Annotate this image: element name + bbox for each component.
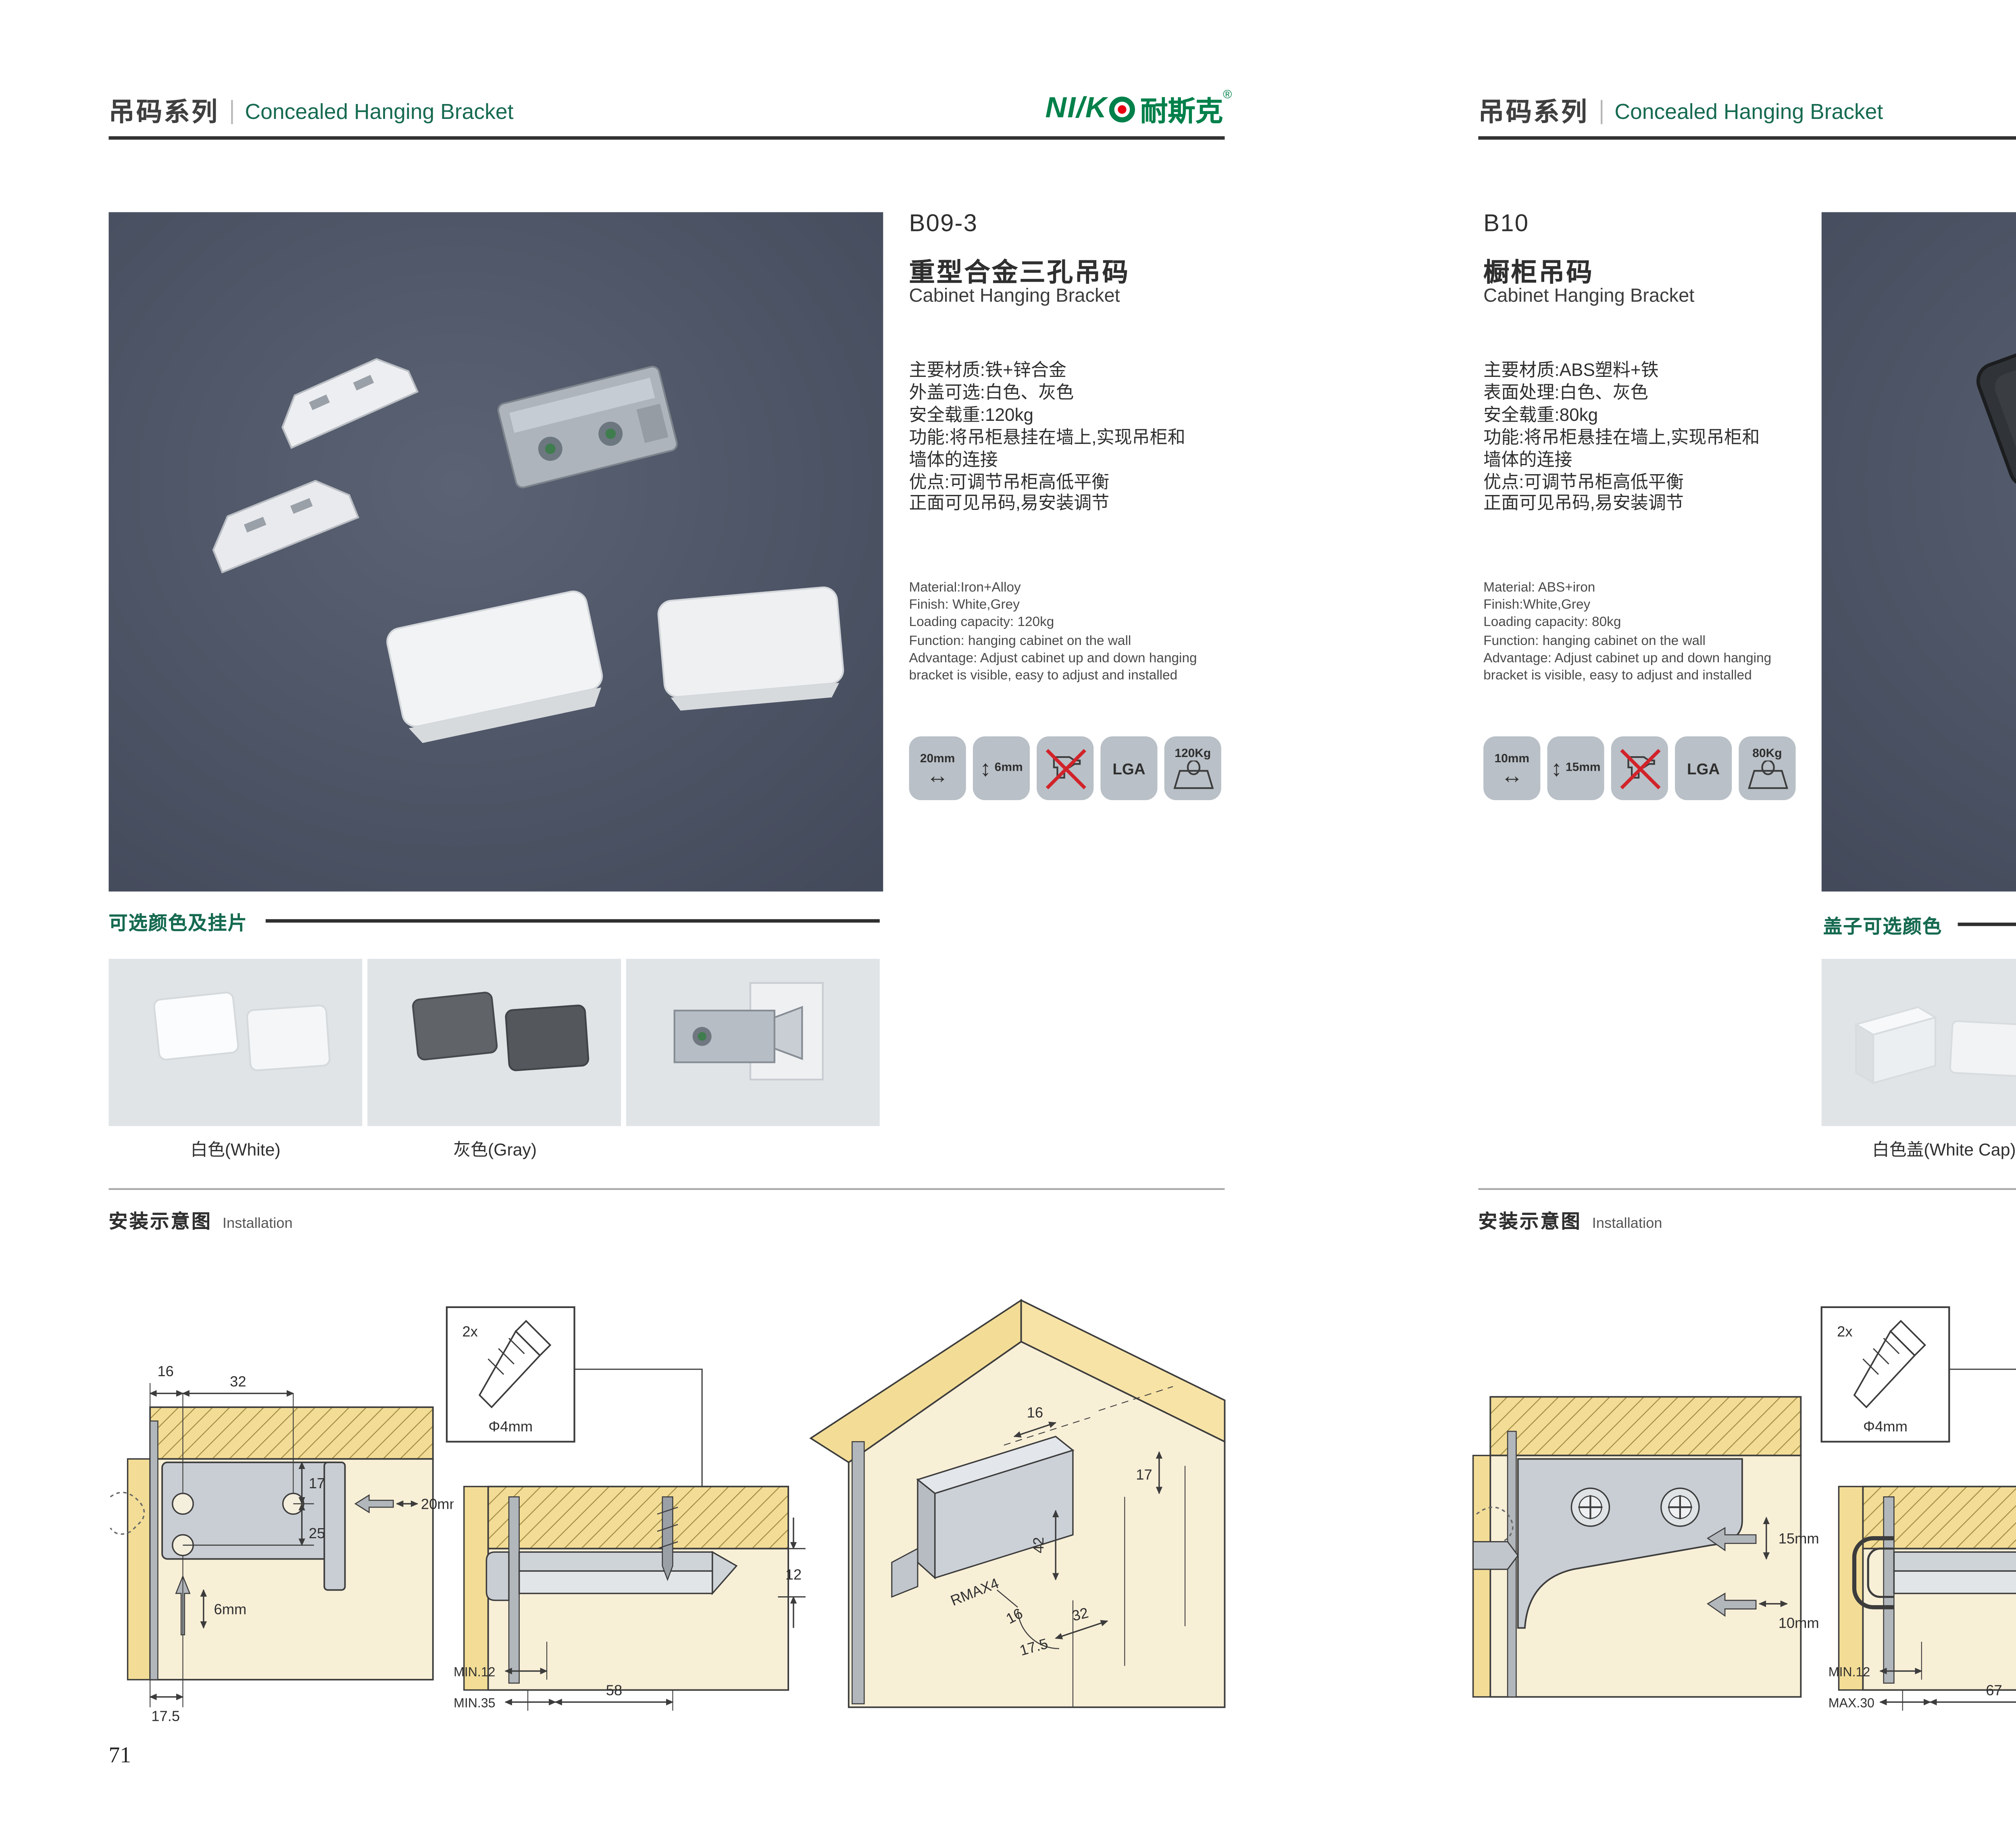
white-caps-image	[109, 959, 362, 1126]
svg-text:17: 17	[309, 1475, 325, 1491]
product-name-en: Cabinet Hanging Bracket	[909, 286, 1120, 307]
specs-cjk: 主要材质:ABS塑料+铁 表面处理:白色、灰色 安全载重:80kg 功能:将吊柜…	[1483, 362, 1760, 518]
badge-vertical-range: ↕ 6mm	[973, 736, 1030, 800]
install-section-title: 安装示意图 Installation	[1478, 1207, 1662, 1235]
series-title-en: Concealed Hanging Bracket	[245, 99, 514, 123]
svg-text:Φ4mm: Φ4mm	[488, 1418, 533, 1435]
badge-no-drill	[1037, 736, 1093, 800]
swatch-caption: 白色(White)	[109, 1135, 362, 1161]
product-name-cjk: 重型合金三孔吊码	[909, 254, 1130, 290]
no-drill-icon	[1043, 746, 1087, 790]
spec-line: Advantage: Adjust cabinet up and down ha…	[1483, 650, 1771, 668]
spec-line: 外盖可选:白色、灰色	[909, 385, 1185, 407]
svg-text:67: 67	[1986, 1682, 2002, 1698]
svg-text:MAX.30: MAX.30	[1829, 1695, 1874, 1710]
header-rule	[109, 136, 1225, 140]
series-title-en: Concealed Hanging Bracket	[1614, 99, 1883, 123]
badge-lga: LGA	[1675, 736, 1732, 800]
svg-text:58: 58	[606, 1682, 622, 1698]
horizontal-arrow-icon: ↔	[926, 765, 949, 784]
svg-text:MIN.12: MIN.12	[1829, 1664, 1870, 1679]
spec-line: Material:Iron+Alloy	[909, 579, 1197, 597]
logo-cjk: 耐斯克	[1140, 88, 1223, 129]
spec-line: 墙体的连接	[909, 451, 1185, 473]
spec-line: Finish:White,Grey	[1483, 597, 1771, 615]
swatch-hanging-plate	[626, 959, 880, 1126]
series-title-cjk: 吊码系列	[109, 93, 219, 129]
logo-text: NI/K	[1045, 92, 1108, 126]
install-diagram-side-section: 2x Φ4mm 18	[1815, 1279, 2016, 1719]
header-rule	[1478, 136, 2016, 140]
svg-text:MIN.12: MIN.12	[454, 1664, 495, 1679]
badge-lga: LGA	[1100, 736, 1157, 800]
install-section-title: 安装示意图 Installation	[109, 1207, 293, 1235]
spec-line: 安全载重:120kg	[909, 407, 1185, 429]
no-drill-icon	[1617, 746, 1662, 790]
gray-caps-image	[367, 959, 621, 1126]
svg-text:16: 16	[1027, 1404, 1043, 1421]
specs-en: Material: ABS+iron Finish:White,Grey Loa…	[1483, 579, 1771, 685]
badge-horizontal-range: 10mm ↔	[1483, 736, 1540, 800]
feature-badges: 10mm ↔ ↕ 15mm LGA 80Kg	[1483, 736, 1795, 800]
page-header: 吊码系列 Concealed Hanging Bracket	[109, 93, 514, 129]
color-swatches	[109, 959, 880, 1126]
page-left: 吊码系列 Concealed Hanging Bracket NI/K 耐斯克 …	[0, 0, 1352, 1847]
svg-text:2x: 2x	[462, 1323, 478, 1340]
svg-text:17.5: 17.5	[151, 1708, 180, 1724]
install-diagram-front-section: 15mm 10mm	[1470, 1348, 1832, 1728]
section-line	[266, 919, 880, 923]
badge-horizontal-range: 20mm ↔	[909, 736, 966, 800]
page-number: 71	[109, 1742, 131, 1769]
logo-red-dot-icon	[1118, 104, 1126, 113]
catalog-spread: 吊码系列 Concealed Hanging Bracket NI/K 耐斯克 …	[0, 0, 2016, 1847]
specs-en: Material:Iron+Alloy Finish: White,Grey L…	[909, 579, 1197, 685]
spec-line: 功能:将吊柜悬挂在墙上,实现吊柜和	[1483, 429, 1760, 451]
colors-section-title: 盖子可选颜色	[1823, 912, 1942, 940]
spec-line: Material: ABS+iron	[1483, 579, 1771, 597]
install-diagram-side-section: 2x Φ4mm 12	[440, 1279, 811, 1719]
white-caps-image	[1822, 959, 2016, 1126]
horizontal-arrow-icon: ↔	[1501, 765, 1523, 784]
header-divider	[1601, 99, 1602, 123]
product-name-en: Cabinet Hanging Bracket	[1483, 286, 1694, 307]
spec-line: Function: hanging cabinet on the wall	[1483, 632, 1771, 650]
spec-line: 安全载重:80kg	[1483, 407, 1760, 429]
page-header: 吊码系列 Concealed Hanging Bracket	[1478, 93, 1883, 129]
svg-text:Φ4mm: Φ4mm	[1863, 1418, 1908, 1435]
svg-text:16: 16	[157, 1363, 173, 1379]
product-photo	[1822, 212, 2016, 892]
weight-icon	[1747, 760, 1788, 789]
spec-line: 优点:可调节吊柜高低平衡	[909, 473, 1185, 495]
registered-mark: ®	[1223, 89, 1232, 102]
install-diagram-front-section: 16 32 17 25 20mm 6mm 17.5	[100, 1348, 454, 1728]
weight-icon	[1172, 760, 1214, 789]
spec-line: 正面可见吊码,易安装调节	[909, 496, 1185, 518]
badge-no-drill	[1611, 736, 1668, 800]
spec-line: Loading capacity: 120kg	[909, 615, 1197, 632]
colors-section-title: 可选颜色及挂片	[109, 909, 248, 936]
svg-text:MIN.35: MIN.35	[454, 1695, 495, 1710]
feature-badges: 20mm ↔ ↕ 6mm LGA 120Kg	[909, 736, 1221, 800]
specs-cjk: 主要材质:铁+锌合金 外盖可选:白色、灰色 安全载重:120kg 功能:将吊柜悬…	[909, 362, 1185, 518]
vertical-arrow-icon: ↕	[1551, 759, 1562, 778]
install-divider	[109, 1188, 1225, 1190]
brand-logo: NI/K 耐斯克 ®	[1045, 89, 1232, 127]
svg-text:15mm: 15mm	[1779, 1530, 1819, 1547]
spec-line: 功能:将吊柜悬挂在墙上,实现吊柜和	[909, 429, 1185, 451]
product-code: B09-3	[909, 209, 978, 236]
svg-text:6mm: 6mm	[214, 1601, 246, 1617]
spec-line: 主要材质:铁+锌合金	[909, 362, 1185, 384]
logo-o-icon	[1109, 96, 1135, 121]
swatch-gray	[367, 959, 621, 1126]
vertical-arrow-icon: ↕	[980, 759, 991, 778]
badge-vertical-range: ↕ 15mm	[1547, 736, 1604, 800]
product-photo-image	[109, 212, 883, 892]
install-diagram-isometric: 16 17 42 RMAX4 16 32 17.5	[797, 1273, 1237, 1721]
badge-load: 120Kg	[1164, 736, 1221, 800]
spec-line: 墙体的连接	[1483, 451, 1760, 473]
svg-text:17: 17	[1136, 1466, 1152, 1483]
product-name-cjk: 橱柜吊码	[1483, 254, 1594, 290]
page-right: 吊码系列 Concealed Hanging Bracket NI/K 耐斯克 …	[1352, 0, 2016, 1847]
swatch-caption: 白色盖(White Cap)	[1822, 1135, 2016, 1161]
hanging-plate-image	[626, 959, 880, 1126]
spec-line: 优点:可调节吊柜高低平衡	[1483, 473, 1760, 495]
white-cover-cap-2	[657, 586, 846, 712]
spec-line: 主要材质:ABS塑料+铁	[1483, 362, 1760, 384]
install-divider	[1478, 1188, 2016, 1190]
product-photo-image	[1822, 212, 2016, 892]
svg-text:42: 42	[1030, 1537, 1047, 1553]
spec-line: 正面可见吊码,易安装调节	[1483, 496, 1760, 518]
section-line	[1958, 923, 2016, 926]
spec-line: bracket is visible, easy to adjust and i…	[909, 668, 1197, 685]
swatch-caption: 灰色(Gray)	[367, 1135, 623, 1161]
svg-text:2x: 2x	[1837, 1323, 1852, 1340]
header-divider	[231, 99, 233, 123]
swatch-white	[109, 959, 362, 1126]
spec-line: bracket is visible, easy to adjust and i…	[1483, 668, 1771, 685]
swatch-white-cap	[1822, 959, 2016, 1126]
svg-text:25: 25	[309, 1525, 325, 1541]
spec-line: Loading capacity: 80kg	[1483, 615, 1771, 632]
spec-line: Function: hanging cabinet on the wall	[909, 632, 1197, 650]
badge-load: 80Kg	[1739, 736, 1795, 800]
color-swatches	[1822, 959, 2016, 1126]
product-photo	[109, 212, 883, 892]
product-code: B10	[1483, 209, 1529, 236]
spec-line: Finish: White,Grey	[909, 597, 1197, 615]
spec-line: 表面处理:白色、灰色	[1483, 385, 1760, 407]
svg-text:32: 32	[230, 1373, 246, 1390]
spec-line: Advantage: Adjust cabinet up and down ha…	[909, 650, 1197, 668]
series-title-cjk: 吊码系列	[1478, 93, 1589, 129]
svg-text:10mm: 10mm	[1779, 1615, 1819, 1631]
